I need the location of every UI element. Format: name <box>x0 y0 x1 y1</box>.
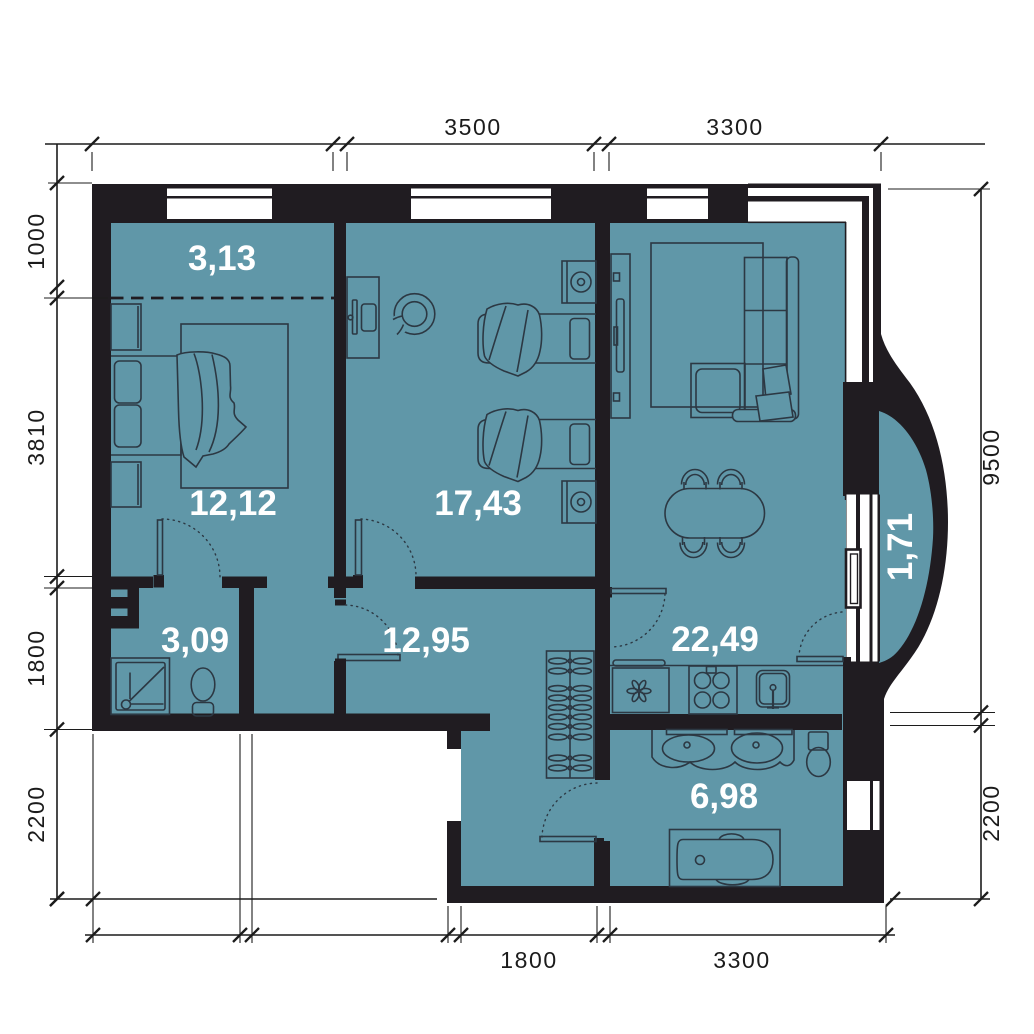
svg-text:2200: 2200 <box>23 785 49 843</box>
svg-text:3300: 3300 <box>713 947 771 973</box>
svg-text:3,09: 3,09 <box>161 621 229 660</box>
svg-text:3500: 3500 <box>444 114 502 140</box>
svg-text:3300: 3300 <box>706 114 764 140</box>
svg-text:17,43: 17,43 <box>434 484 522 523</box>
svg-text:1800: 1800 <box>500 947 558 973</box>
svg-text:1800: 1800 <box>23 629 49 687</box>
svg-text:1000: 1000 <box>23 212 49 270</box>
svg-text:3810: 3810 <box>23 408 49 466</box>
svg-text:2200: 2200 <box>978 784 1004 842</box>
svg-text:3,13: 3,13 <box>188 239 256 278</box>
svg-text:12,12: 12,12 <box>189 484 277 523</box>
svg-text:12,95: 12,95 <box>382 621 470 660</box>
svg-text:1,71: 1,71 <box>881 513 920 581</box>
svg-text:22,49: 22,49 <box>671 620 759 659</box>
svg-text:6,98: 6,98 <box>690 777 758 816</box>
svg-text:9500: 9500 <box>978 428 1004 486</box>
